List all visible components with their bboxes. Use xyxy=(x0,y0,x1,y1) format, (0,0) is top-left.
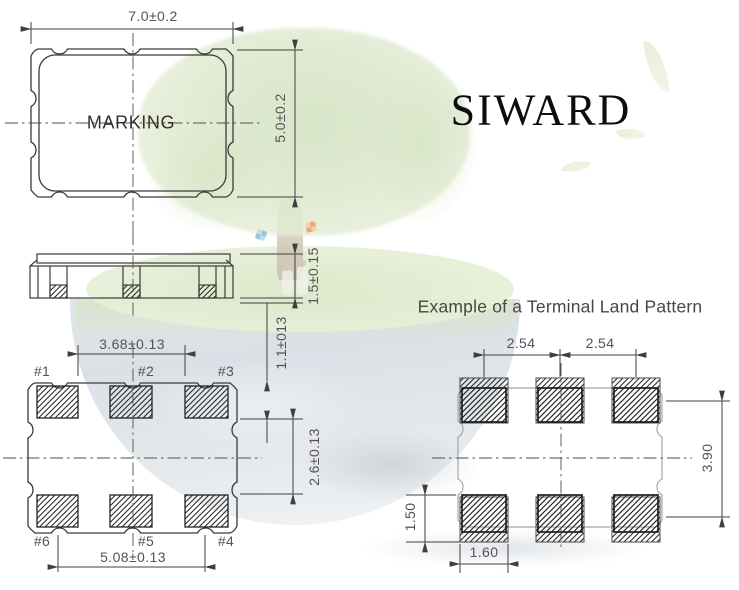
pad-label-6: #6 xyxy=(34,533,50,549)
dim-label-top-height: 5.0±0.2 xyxy=(272,93,288,142)
dim-pad-height xyxy=(240,303,303,443)
dim-label-land-pad-width: 1.60 xyxy=(470,544,499,560)
dim-label-vertical-span: 3.90 xyxy=(699,444,715,473)
dim-label-pad-row-gap: 2.6±0.13 xyxy=(306,428,322,486)
dim-top-height xyxy=(237,50,303,197)
dim-label-pad-inner-span: 3.68±0.13 xyxy=(99,336,165,352)
dim-side-thickness xyxy=(240,254,303,298)
dim-label-thickness: 1.5±0.15 xyxy=(305,247,321,305)
datasheet-page: 7.0±0.2 5.0±0.2 MARKING 1.5±0.15 1.1±013… xyxy=(0,0,739,590)
siward-logo: SIWARD xyxy=(451,85,632,136)
land-pattern-title: Example of a Terminal Land Pattern xyxy=(418,297,703,318)
dim-label-top-width: 7.0±0.2 xyxy=(128,8,177,24)
side-view-lid xyxy=(37,254,230,263)
marking-label: MARKING xyxy=(87,113,175,134)
pad-label-3: #3 xyxy=(218,363,234,379)
package-pads-overlay xyxy=(462,388,658,532)
dim-label-pitch-left: 2.54 xyxy=(507,335,536,351)
land-pattern-drawing xyxy=(406,349,730,573)
dim-label-land-pad-height: 1.50 xyxy=(402,503,418,532)
dim-pitch xyxy=(484,349,636,377)
bottom-view-pads xyxy=(37,386,228,527)
side-view-drawing xyxy=(30,232,303,318)
dim-label-pad-outer-span: 5.08±0.13 xyxy=(100,549,166,565)
pad-label-5: #5 xyxy=(138,533,154,549)
dim-vertical-span xyxy=(666,401,730,517)
pad-label-2: #2 xyxy=(138,363,154,379)
dim-pad-row-gap xyxy=(240,419,303,494)
pad-label-4: #4 xyxy=(218,533,234,549)
dim-label-pad-height: 1.1±013 xyxy=(273,316,289,369)
dim-top-width xyxy=(31,22,233,44)
dim-label-pitch-right: 2.54 xyxy=(586,335,615,351)
pad-label-1: #1 xyxy=(34,363,50,379)
